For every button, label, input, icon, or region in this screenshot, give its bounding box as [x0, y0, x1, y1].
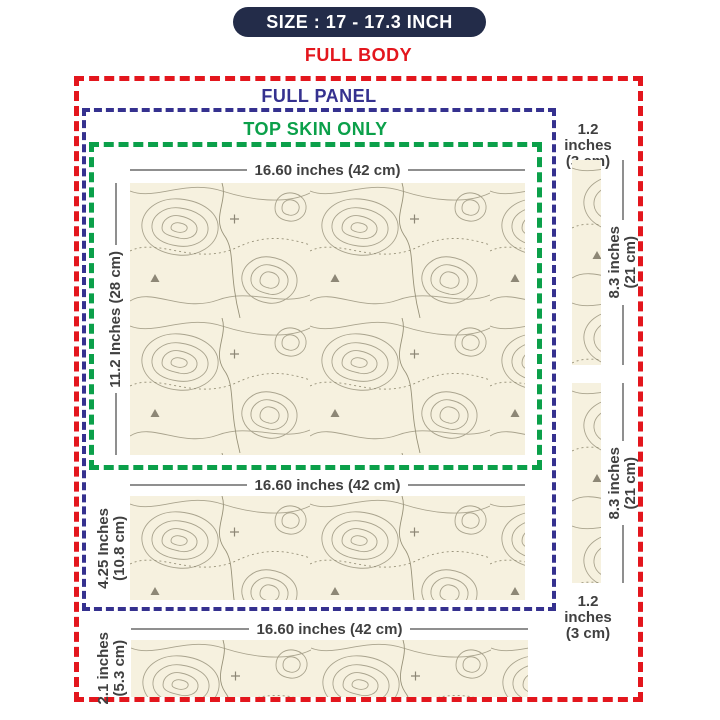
main-panel-height-text: 11.2 Inches (28 cm) [108, 251, 124, 388]
right-strip-upper-height-text: 8.3 inches (21 cm) [607, 226, 639, 299]
bottom-strip-height-line2: (5.3 cm) [112, 632, 128, 705]
bottom-strip-height-line1: 2.1 inches [96, 632, 112, 705]
right-strip-upper-height-line2: (21 cm) [623, 226, 639, 299]
bottom-strip-height-text: 2.1 inches (5.3 cm) [96, 632, 128, 705]
dimension-line [408, 484, 525, 486]
right-skin-strip-lower [572, 383, 601, 583]
dimension-line [622, 305, 624, 365]
bottom-strip-width-text: 16.60 inches (42 cm) [257, 621, 403, 638]
middle-strip-height-line1: 4.25 Inches [96, 508, 112, 589]
right-strip-lower-height-line1: 8.3 inches [607, 447, 623, 520]
dimension-line [131, 628, 249, 630]
right-bottom-width-line1: 1.2 inches [553, 594, 623, 626]
right-strip-lower-height-text: 8.3 inches (21 cm) [607, 447, 639, 520]
main-skin-panel [130, 183, 525, 455]
right-top-width-line1: 1.2 inches [553, 122, 623, 154]
dimension-line [622, 160, 624, 220]
middle-strip-height-line2: (10.8 cm) [112, 508, 128, 589]
middle-strip-width-text: 16.60 inches (42 cm) [255, 477, 401, 494]
topographic-texture [131, 640, 528, 697]
dimension-line [408, 169, 525, 171]
size-badge: SIZE : 17 - 17.3 INCH [233, 7, 486, 37]
middle-strip-height-text: 4.25 Inches (10.8 cm) [96, 508, 128, 589]
right-bottom-width-label: 1.2 inches (3 cm) [553, 594, 623, 642]
middle-strip-height-dimension: 4.25 Inches (10.8 cm) [95, 496, 129, 600]
right-strip-lower-height-dimension: 8.3 inches (21 cm) [606, 383, 640, 583]
bottom-strip-width-dimension: 16.60 inches (42 cm) [131, 621, 528, 637]
size-badge-text: SIZE : 17 - 17.3 INCH [266, 12, 453, 33]
dimension-line [115, 393, 117, 455]
right-strip-upper-height-line1: 8.3 inches [607, 226, 623, 299]
middle-skin-strip [130, 496, 525, 600]
topographic-texture [572, 383, 601, 583]
main-panel-width-dimension: 16.60 inches (42 cm) [130, 162, 525, 178]
dimension-line [622, 383, 624, 441]
right-bottom-width-line2: (3 cm) [553, 626, 623, 642]
bottom-strip-height-dimension: 2.1 inches (5.3 cm) [95, 640, 129, 697]
topographic-texture [130, 183, 525, 455]
topographic-texture [130, 496, 525, 600]
main-panel-height-dimension: 11.2 Inches (28 cm) [102, 183, 130, 455]
right-skin-strip-upper [572, 160, 601, 365]
middle-strip-width-dimension: 16.60 inches (42 cm) [130, 477, 525, 493]
dimension-line [622, 525, 624, 583]
bottom-skin-strip [131, 640, 528, 697]
right-strip-lower-height-line2: (21 cm) [623, 447, 639, 520]
dimension-line [130, 169, 247, 171]
dimension-line [130, 484, 247, 486]
full-body-label: FULL BODY [74, 45, 643, 66]
right-strip-upper-height-dimension: 8.3 inches (21 cm) [606, 160, 640, 365]
main-panel-width-text: 16.60 inches (42 cm) [255, 162, 401, 179]
topographic-texture [572, 160, 601, 365]
dimension-line [410, 628, 528, 630]
dimension-line [115, 183, 117, 245]
